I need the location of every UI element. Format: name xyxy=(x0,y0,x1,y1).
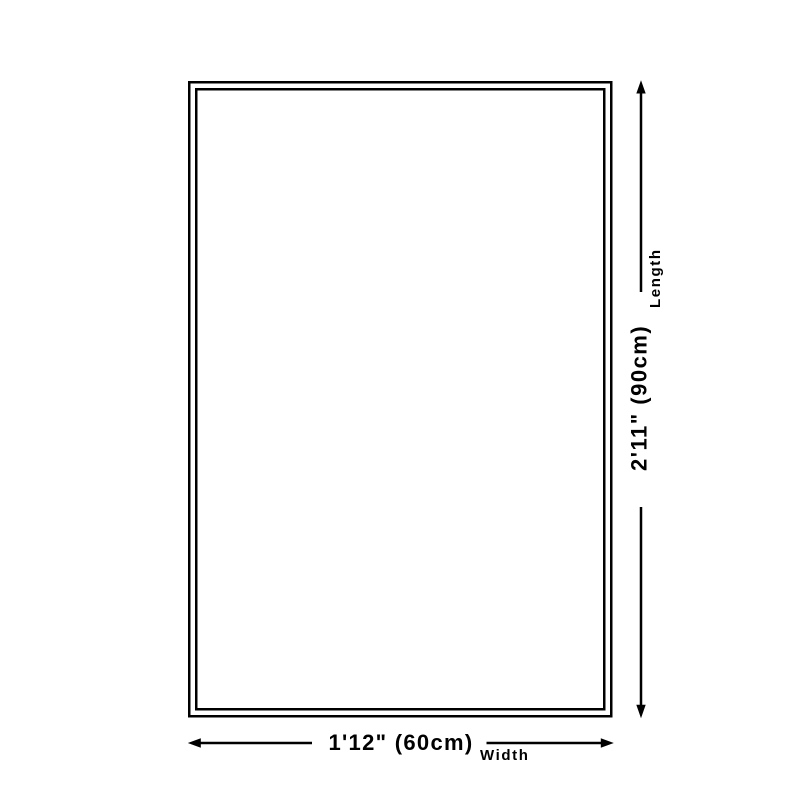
svg-text:1'12" (60cm): 1'12" (60cm) xyxy=(328,730,473,755)
svg-text:Width: Width xyxy=(480,747,530,764)
svg-text:2'11" (90cm): 2'11" (90cm) xyxy=(627,325,652,471)
svg-text:Length: Length xyxy=(647,248,664,308)
